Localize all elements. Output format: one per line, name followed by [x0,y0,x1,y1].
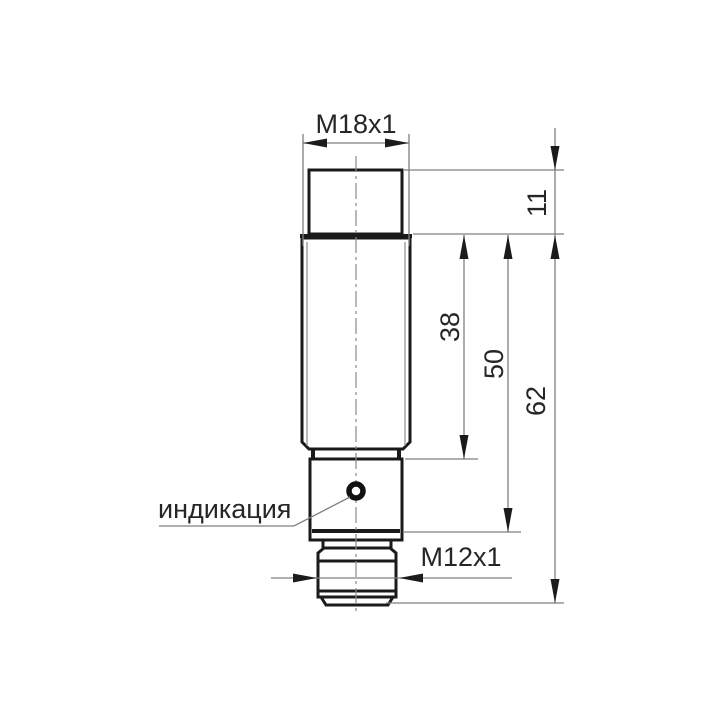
arrowhead-down-icon [504,508,513,532]
arrowhead-right-icon [293,574,317,583]
technical-drawing-page: M18x1 38 50 11 62 M12x1 индикация [0,0,724,724]
arrowhead-up-icon [460,235,469,259]
arrowhead-down-icon [551,146,560,170]
m12-connector-tip [321,597,393,605]
label-thread-top: M18x1 [315,109,396,139]
sensor-dimension-drawing: M18x1 38 50 11 62 M12x1 индикация [0,0,724,724]
connector-collar [318,548,396,561]
arrowhead-down-icon [551,579,560,603]
arrowhead-up-icon [551,235,560,259]
label-connector-thread: M12x1 [420,542,501,572]
label-indicator: индикация [158,494,291,524]
arrowhead-left-icon [399,574,423,583]
dimension-value-cap-height: 11 [522,189,552,217]
arrowhead-down-icon [460,435,469,459]
arrowhead-left-icon [303,139,327,148]
led-indicator [349,484,363,498]
dimension-value-thread-length: 38 [435,312,465,342]
arrowhead-right-icon [385,139,409,148]
m12-connector-body [318,561,396,591]
dimension-value-housing-length: 50 [479,349,509,379]
arrowhead-up-icon [504,235,513,259]
dimension-value-total-length: 62 [521,386,551,416]
